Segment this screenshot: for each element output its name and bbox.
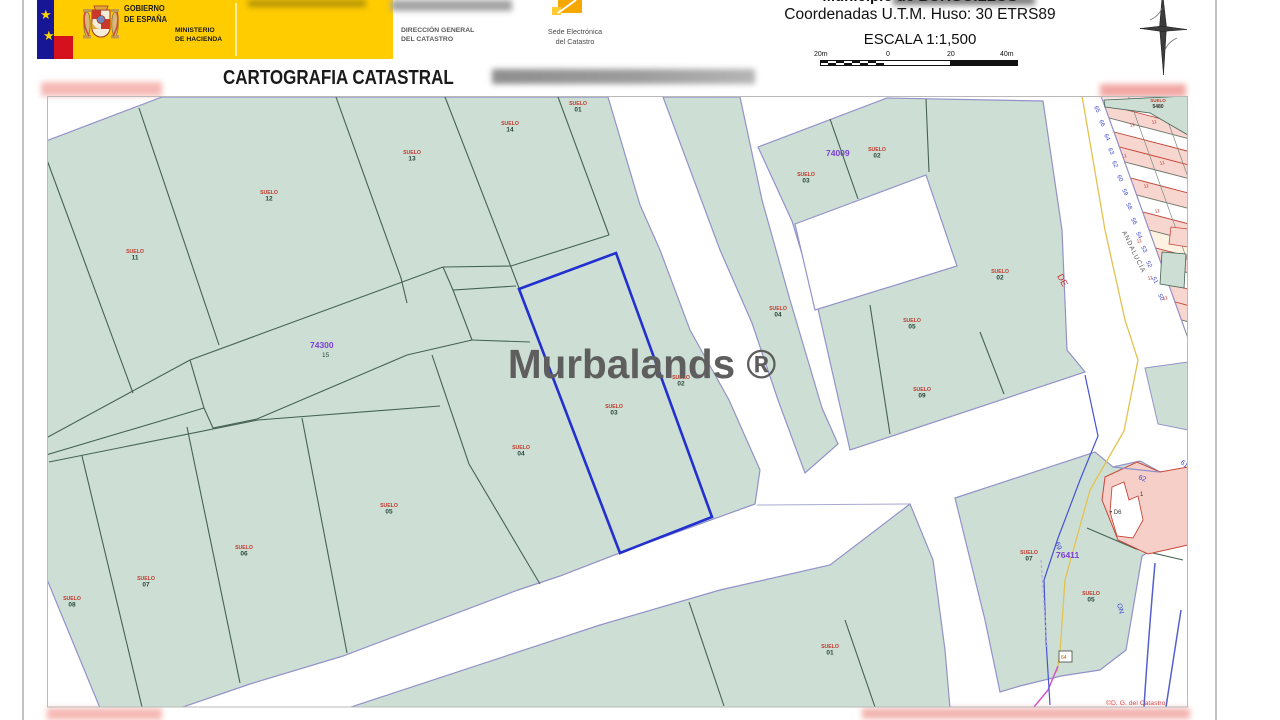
- svg-text:• D6: • D6: [1110, 510, 1122, 516]
- svg-text:62: 62: [1110, 160, 1119, 169]
- svg-text:08: 08: [68, 602, 76, 609]
- svg-text:13: 13: [408, 156, 416, 163]
- svg-text:76411: 76411: [1056, 550, 1079, 560]
- svg-text:02: 02: [873, 153, 881, 160]
- svg-text:74009: 74009: [826, 148, 850, 158]
- svg-text:74300: 74300: [310, 340, 334, 350]
- svg-text:60: 60: [1115, 174, 1124, 183]
- svg-text:05: 05: [1087, 597, 1095, 604]
- svg-text:12: 12: [265, 196, 273, 203]
- svg-text:05: 05: [908, 324, 916, 331]
- svg-text:04: 04: [517, 451, 525, 458]
- svg-text:02: 02: [996, 275, 1004, 282]
- svg-text:03: 03: [610, 410, 618, 417]
- svg-text:©D. G. del Catastro: ©D. G. del Catastro: [1106, 699, 1166, 707]
- svg-text:06: 06: [240, 551, 248, 558]
- svg-text:01: 01: [574, 107, 582, 114]
- svg-text:01: 01: [826, 650, 834, 657]
- svg-text:15: 15: [322, 352, 330, 359]
- svg-text:0: 0: [42, 291, 45, 297]
- svg-text:59: 59: [1120, 188, 1129, 197]
- svg-text:11: 11: [132, 255, 139, 262]
- svg-text:SUELO: SUELO: [1150, 98, 1166, 103]
- svg-text:07: 07: [142, 582, 150, 589]
- svg-text:66: 66: [1097, 119, 1106, 128]
- svg-text:65: 65: [1092, 105, 1101, 114]
- svg-text:53: 53: [1139, 245, 1148, 254]
- svg-text:03: 03: [802, 178, 810, 185]
- svg-text:58: 58: [1124, 202, 1133, 211]
- svg-text:5480: 5480: [1152, 104, 1163, 110]
- svg-text:14: 14: [506, 127, 514, 134]
- svg-text:56: 56: [1129, 217, 1138, 226]
- svg-text:05: 05: [385, 509, 393, 516]
- svg-text:64: 64: [1061, 655, 1067, 661]
- svg-text:09: 09: [918, 393, 926, 400]
- svg-text:51: 51: [1150, 276, 1159, 285]
- svg-text:07: 07: [1025, 556, 1033, 563]
- svg-text:Murbalands ®: Murbalands ®: [508, 341, 777, 387]
- svg-text:63: 63: [1106, 147, 1115, 156]
- svg-text:04: 04: [774, 312, 782, 319]
- svg-text:64: 64: [1102, 133, 1111, 142]
